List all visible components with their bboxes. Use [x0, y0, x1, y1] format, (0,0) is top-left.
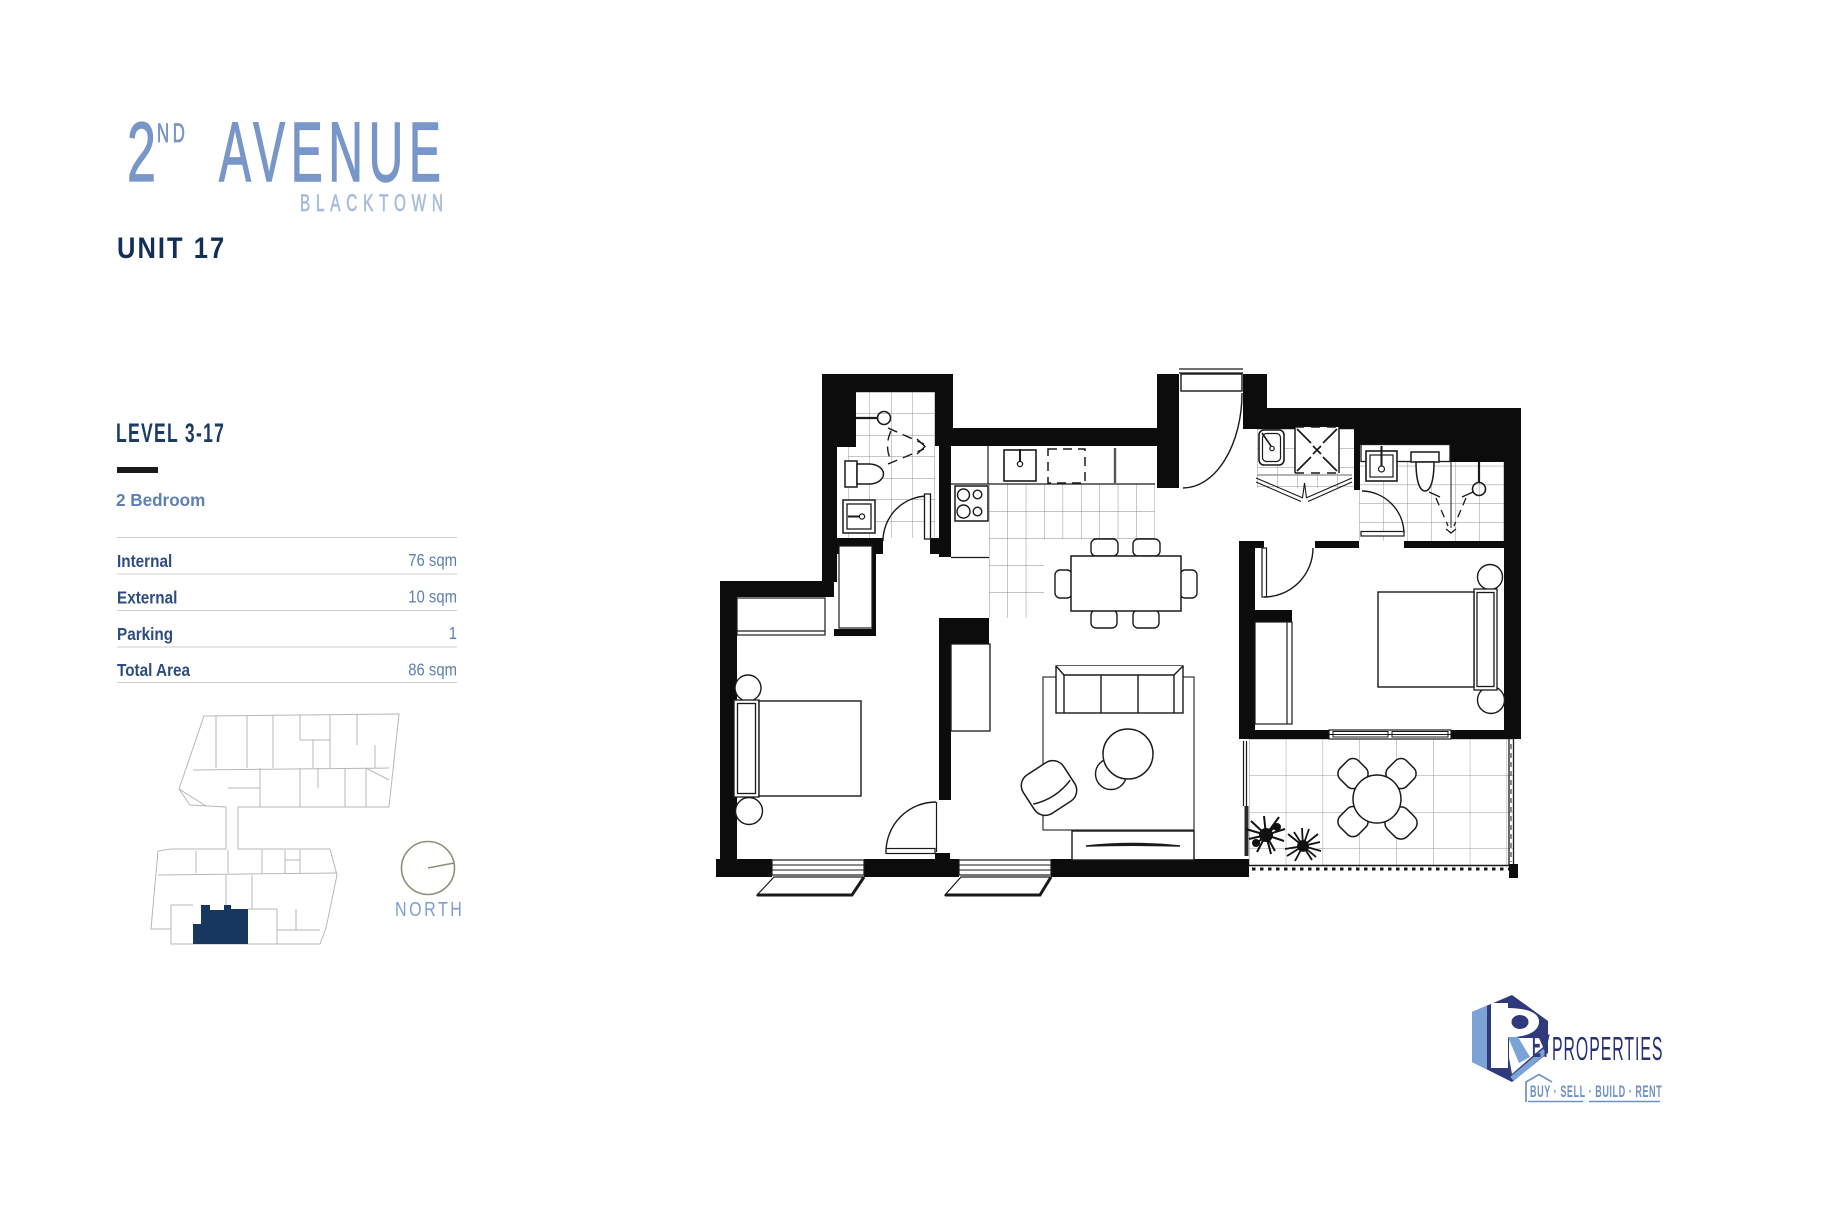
- svg-text:Total Area: Total Area: [117, 660, 191, 680]
- svg-text:AVENUE: AVENUE: [219, 106, 447, 199]
- svg-text:BLACKTOWN: BLACKTOWN: [300, 191, 449, 217]
- svg-text:86 sqm: 86 sqm: [408, 660, 457, 679]
- svg-text:External: External: [117, 587, 177, 607]
- svg-text:Internal: Internal: [117, 551, 172, 571]
- svg-text:1: 1: [449, 624, 457, 643]
- svg-text:2 Bedroom: 2 Bedroom: [116, 490, 205, 511]
- svg-text:LEVEL 3-17: LEVEL 3-17: [116, 417, 225, 448]
- svg-text:NORTH: NORTH: [395, 898, 464, 920]
- svg-text:EY: EY: [1532, 1030, 1550, 1065]
- svg-text:Parking: Parking: [117, 624, 173, 644]
- svg-text:2: 2: [127, 105, 156, 199]
- svg-text:BUY · SELL · BUILD · RENT: BUY · SELL · BUILD · RENT: [1530, 1082, 1662, 1101]
- svg-text:ND: ND: [157, 118, 189, 148]
- svg-text:76 sqm: 76 sqm: [408, 551, 457, 570]
- svg-text:PROPERTIES: PROPERTIES: [1552, 1032, 1663, 1068]
- svg-text:10 sqm: 10 sqm: [408, 587, 457, 606]
- svg-text:UNIT 17: UNIT 17: [117, 231, 226, 264]
